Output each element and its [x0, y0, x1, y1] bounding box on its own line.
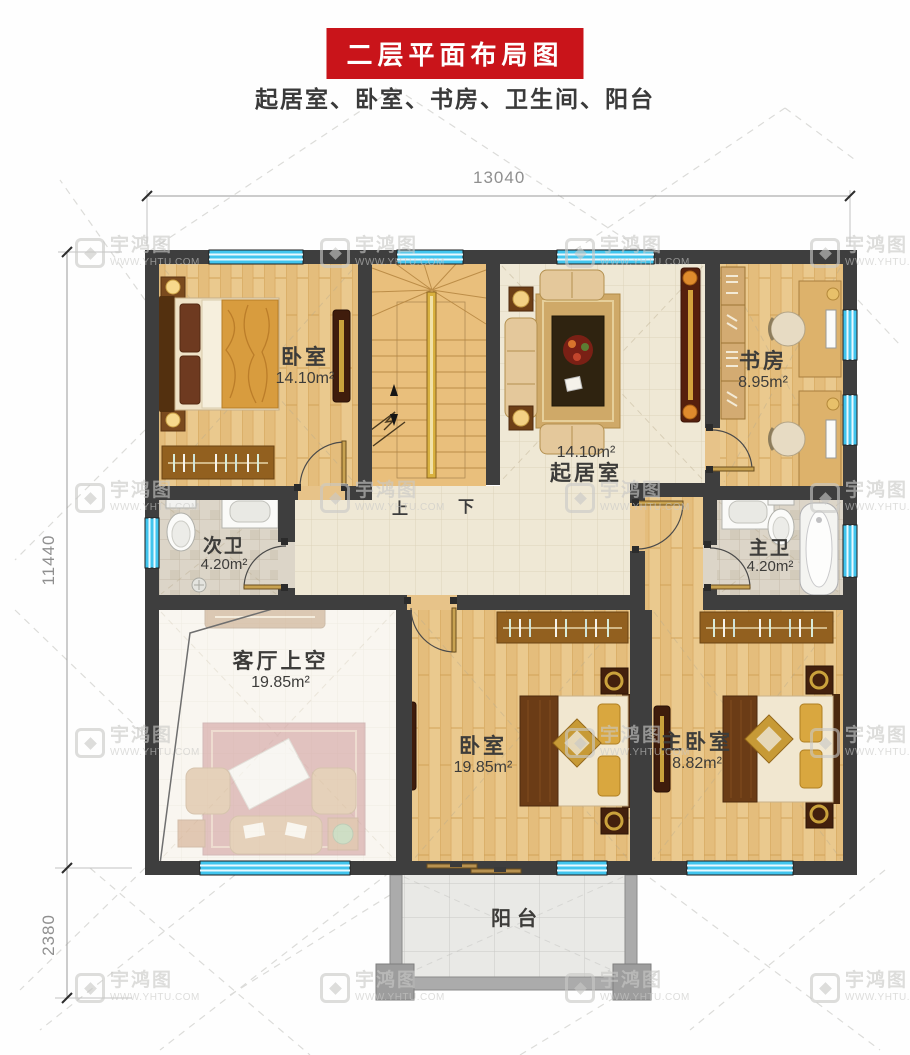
- window: [145, 518, 159, 568]
- window: [843, 395, 857, 445]
- tv-cabinet: [681, 268, 700, 422]
- stair-up-label: 上: [392, 495, 408, 519]
- label-balcony: 阳台: [452, 908, 582, 930]
- lamp: [166, 413, 180, 427]
- floor-plan-drawing: [0, 0, 910, 1055]
- window: [397, 250, 463, 264]
- window: [843, 310, 857, 360]
- wardrobe: [700, 612, 833, 643]
- sink: [722, 495, 774, 529]
- floor-plan-page: 二层平面布局图 起居室、卧室、书房、卫生间、阳台: [0, 0, 910, 1055]
- void-fade-overlay: [159, 610, 396, 861]
- label-bath-second: 次卫 4.20m²: [160, 536, 288, 574]
- page-subtitle: 起居室、卧室、书房、卫生间、阳台: [0, 80, 910, 114]
- label-study: 书房 8.95m²: [698, 350, 828, 391]
- wardrobe: [497, 612, 628, 643]
- lamp: [166, 280, 180, 294]
- page-title: 二层平面布局图: [326, 28, 583, 79]
- sofa-set: [505, 270, 620, 454]
- window: [843, 525, 857, 577]
- dimension-top: 13040: [473, 168, 525, 188]
- floor-corridor: [645, 497, 703, 610]
- label-living-void: 客厅上空 19.85m²: [198, 650, 363, 691]
- wardrobe: [162, 446, 274, 479]
- window: [557, 250, 654, 264]
- label-bath-master: 主卫 4.20m²: [706, 538, 834, 576]
- balcony-column: [613, 964, 651, 1000]
- balcony-column: [376, 964, 414, 1000]
- bookshelf: [721, 267, 745, 419]
- window: [557, 861, 607, 875]
- label-bedroom-master: 主卧室 8.82m²: [628, 731, 766, 772]
- window: [200, 861, 350, 875]
- dimension-balcony: 2380: [39, 913, 59, 957]
- window: [687, 861, 793, 875]
- label-bedroom-bottom: 卧室 19.85m²: [418, 735, 548, 776]
- label-living-room: 14.10m² 起居室: [520, 444, 652, 485]
- label-bedroom-top-left: 卧室 14.10m²: [240, 346, 370, 387]
- sofa: [505, 318, 537, 418]
- window: [209, 250, 303, 264]
- stair-down-label: 下: [458, 493, 474, 517]
- dimension-left: 11440: [39, 534, 59, 586]
